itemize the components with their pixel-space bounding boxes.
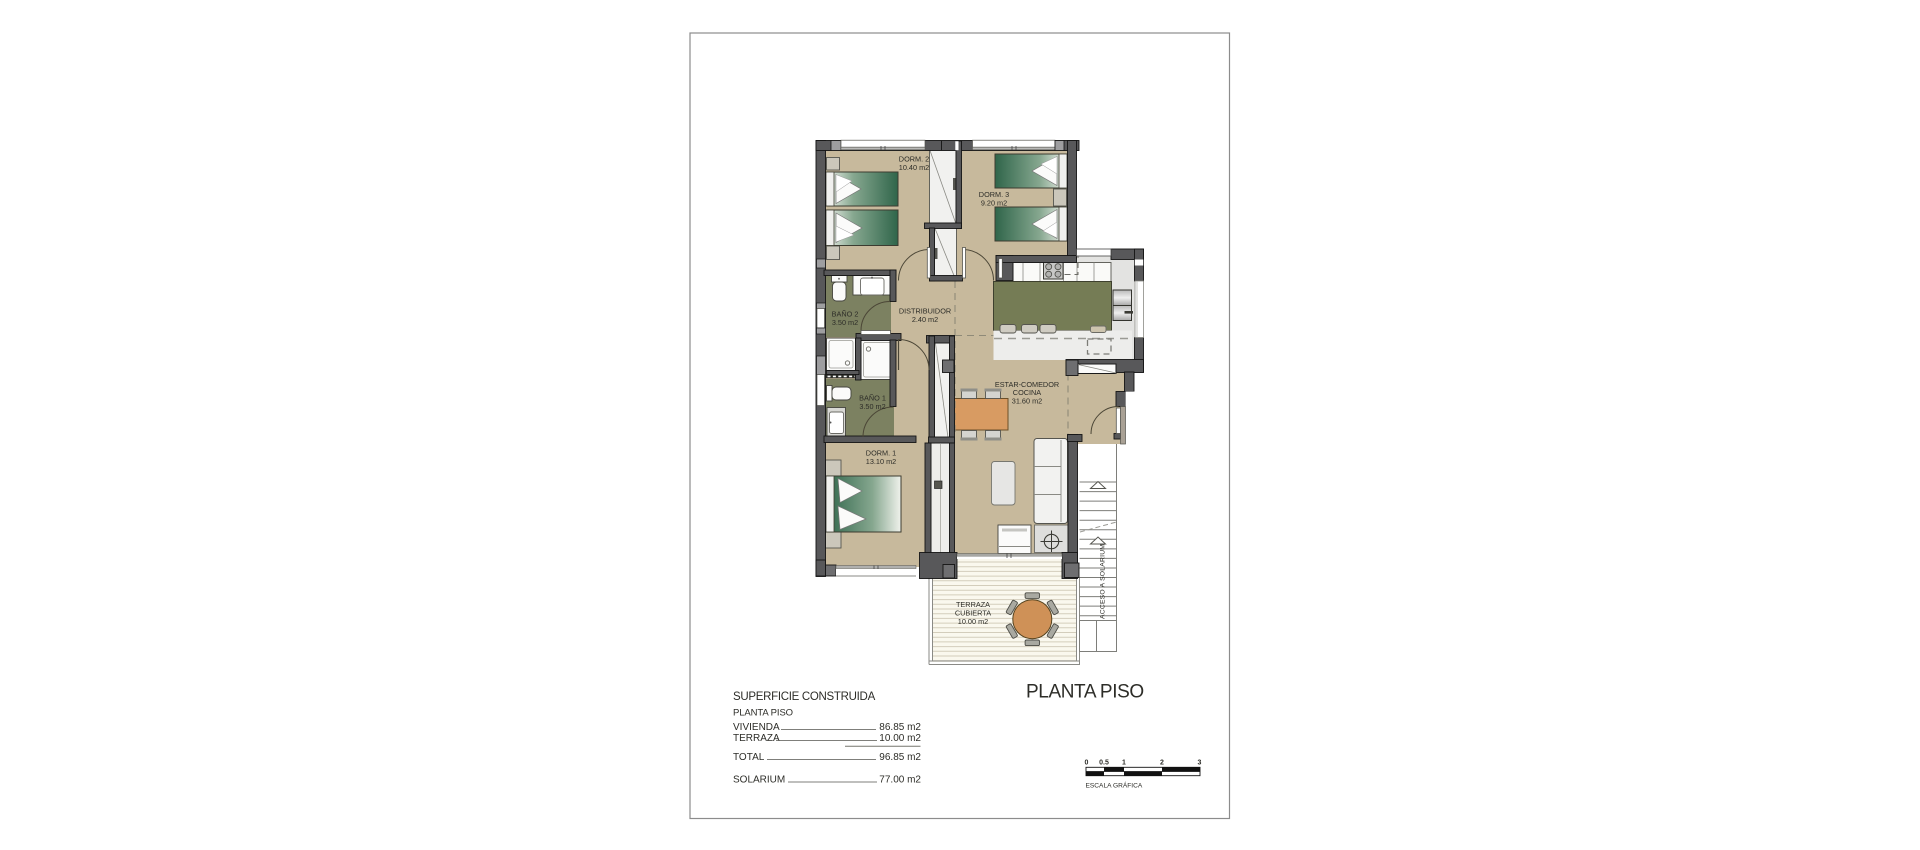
svg-text:VIVIENDA: VIVIENDA [733,722,780,733]
svg-text:TERRAZA: TERRAZA [733,733,780,744]
svg-text:3: 3 [1198,760,1202,767]
svg-text:SOLARIUM: SOLARIUM [733,775,785,786]
svg-text:13.10 m2: 13.10 m2 [866,457,896,466]
svg-text:PLANTA PISO: PLANTA PISO [733,708,793,719]
svg-text:31.60 m2: 31.60 m2 [1012,397,1042,406]
svg-text:10.40 m2: 10.40 m2 [899,163,929,172]
svg-text:ESCALA GRÁFICA: ESCALA GRÁFICA [1086,781,1143,790]
svg-text:2.40 m2: 2.40 m2 [912,315,938,324]
svg-text:0.5: 0.5 [1099,760,1109,767]
svg-text:TOTAL: TOTAL [733,752,765,763]
svg-text:10.00 m2: 10.00 m2 [958,617,988,626]
svg-text:9.20 m2: 9.20 m2 [981,199,1007,208]
svg-text:1: 1 [1122,760,1126,767]
svg-text:ACCESO A SOLARIUM: ACCESO A SOLARIUM [1100,544,1107,619]
svg-text:SUPERFICIE CONSTRUIDA: SUPERFICIE CONSTRUIDA [733,691,876,703]
svg-text:86.85 m2: 86.85 m2 [879,722,921,733]
svg-text:PLANTA PISO: PLANTA PISO [1026,682,1144,703]
svg-text:3.50 m2: 3.50 m2 [859,402,885,411]
svg-text:96.85 m2: 96.85 m2 [879,752,921,763]
svg-text:2: 2 [1160,760,1164,767]
svg-text:10.00 m2: 10.00 m2 [879,733,921,744]
svg-text:3.50 m2: 3.50 m2 [832,318,858,327]
svg-text:77.00 m2: 77.00 m2 [879,775,921,786]
svg-text:0: 0 [1085,760,1089,767]
